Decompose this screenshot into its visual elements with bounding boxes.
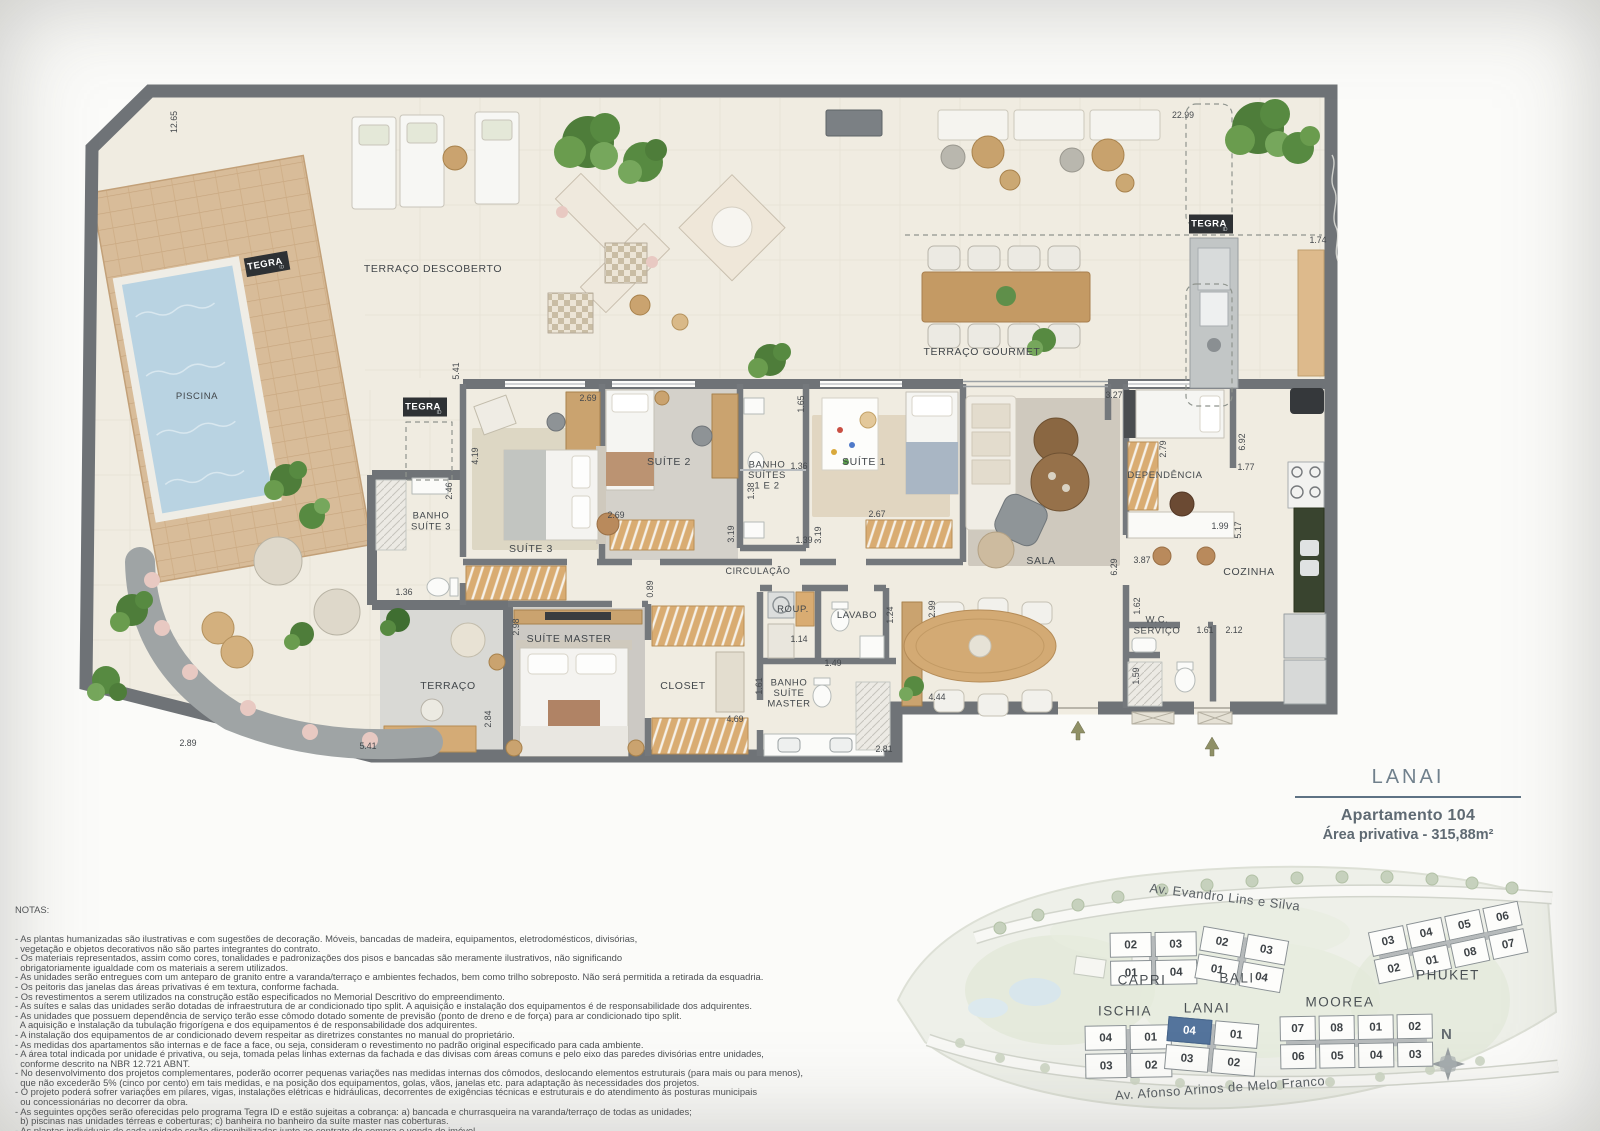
unit-ischia-04: 04	[1085, 1025, 1127, 1051]
unit-moorea-01: 01	[1358, 1014, 1394, 1040]
tegra-logo-text: TEGRA	[1191, 219, 1227, 230]
title-divider	[1295, 796, 1521, 798]
dimension-label: 5.17	[1233, 521, 1243, 538]
dimension-label: 5.41	[451, 362, 461, 379]
dimension-label: 2.46	[444, 482, 454, 499]
apartment-label: Apartamento 104	[1295, 807, 1521, 825]
dimension-label: 0.89	[645, 580, 655, 597]
notes-lines: - As plantas humanizadas são ilustrativa…	[15, 934, 803, 1131]
room-label: TERRAÇO GOURMET	[924, 346, 1041, 358]
entrance-arrow-icon	[1205, 737, 1219, 756]
dimension-label: 2.79	[1158, 440, 1168, 457]
dimension-label: 4.19	[470, 447, 480, 464]
room-label: DEPENDÊNCIA	[1127, 470, 1202, 481]
sitemap-building-ischia: 04010302	[1085, 1024, 1173, 1082]
dimension-label: 1.77	[1237, 462, 1254, 472]
dimension-label: 1.59	[1131, 667, 1141, 684]
dimension-label: 1.39	[795, 535, 812, 545]
dimension-label: 1.14	[790, 634, 807, 644]
room-label: CLOSET	[660, 680, 706, 692]
plant	[996, 286, 1016, 306]
sitemap-building-lanai: 04010302	[1164, 1016, 1260, 1080]
sun-loungers	[352, 112, 519, 209]
dimension-label: 3.87	[1133, 555, 1150, 565]
dimension-label: 1.49	[824, 658, 841, 668]
unit-capri-03: 03	[1155, 931, 1197, 957]
unit-lanai-03: 03	[1164, 1044, 1210, 1073]
room-label: SUÍTE 1	[842, 455, 886, 468]
dimension-label: 1.65	[796, 395, 806, 412]
dimension-label: 4.44	[928, 692, 945, 702]
dimension-label: 2.12	[1225, 625, 1242, 635]
dimension-label: 1.24	[885, 606, 895, 623]
room-label: TERRAÇO DESCOBERTO	[364, 263, 502, 275]
note-line: - As plantas individuais de cada unidade…	[15, 1126, 803, 1131]
dimension-label: 1.61	[1196, 625, 1213, 635]
unit-moorea-07: 07	[1280, 1016, 1316, 1042]
sitemap-building-name-ischia: ISCHIA	[1098, 1004, 1152, 1019]
dimension-label: 6.92	[1237, 433, 1247, 450]
tegra-logo-id-text: ID	[1223, 227, 1228, 233]
room-label: BANHOSUÍTE 3	[411, 511, 451, 533]
dimension-label: 1.36	[790, 461, 807, 471]
notes-heading: NOTAS:	[15, 905, 803, 915]
dimension-label: 1.99	[1211, 521, 1228, 531]
sitemap-building-name-capri: CAPRI	[1118, 973, 1167, 988]
room-label: SUÍTE 2	[647, 455, 691, 468]
room-label: LAVABO	[837, 610, 877, 621]
dimension-label: 2.99	[927, 600, 937, 617]
dimension-label: 1.61	[754, 677, 764, 694]
room-label: CIRCULAÇÃO	[725, 566, 790, 576]
notes-block: NOTAS: - As plantas humanizadas são ilus…	[15, 886, 803, 1131]
dimension-label: 4.69	[726, 714, 743, 724]
entrance-arrow-icon	[1071, 721, 1085, 740]
dimension-label: 2.69	[579, 393, 596, 403]
dimension-label: 2.67	[868, 509, 885, 519]
dimension-label: 1.74	[1309, 235, 1326, 245]
dimension-label: 5.41	[359, 741, 376, 751]
dimension-label: 1.36	[395, 587, 412, 597]
room-label: SALA	[1026, 555, 1055, 567]
dimension-label: 22.99	[1172, 110, 1194, 120]
unit-lanai-02: 02	[1211, 1048, 1257, 1077]
grill	[826, 110, 882, 136]
title-block: LANAI Apartamento 104 Área privativa - 3…	[1295, 766, 1521, 843]
dimension-label: 2.81	[875, 744, 892, 754]
unit-moorea-06: 06	[1280, 1044, 1316, 1070]
tegra-logo-text: TEGRA	[405, 402, 441, 413]
unit-ischia-03: 03	[1085, 1053, 1127, 1079]
floorplan-graphics: TERRAÇO DESCOBERTOPISCINATERRAÇO GOURMET…	[86, 91, 1338, 756]
building-name: LANAI	[1295, 766, 1521, 789]
unit-moorea-05: 05	[1319, 1043, 1355, 1069]
room-label: BANHOSUÍTEMASTER	[767, 677, 810, 709]
compass-north-label: N	[1441, 1026, 1452, 1043]
dimension-label: 1.38	[746, 482, 756, 499]
unit-lanai-01: 01	[1213, 1020, 1259, 1049]
private-area-label: Área privativa - 315,88m²	[1295, 827, 1521, 843]
dimension-label: 6.29	[1109, 558, 1119, 575]
unit-lanai-04: 04	[1166, 1016, 1212, 1045]
dimension-label: 3.27	[1105, 390, 1122, 400]
dimension-label: 2.89	[179, 738, 196, 748]
sitemap-building-name-moorea: MOOREA	[1305, 995, 1374, 1010]
sitemap-building-name-phuket: PHUKET	[1416, 968, 1480, 983]
dimension-label: 1.62	[1132, 597, 1142, 614]
dimension-label: 2.98	[511, 618, 521, 635]
room-label: TERRAÇO	[420, 680, 476, 692]
room-label: SUÍTE MASTER	[527, 632, 612, 645]
sitemap-building-name-bali: BALI	[1219, 971, 1254, 986]
room-label: COZINHA	[1223, 566, 1274, 578]
room-label: SUÍTE 3	[509, 542, 553, 555]
entrance-arrows	[1071, 721, 1219, 756]
dimension-label: 12.65	[169, 111, 179, 133]
dimension-label: 2.69	[607, 510, 624, 520]
room-label: ROUP.	[777, 604, 809, 615]
tegra-logo-id-text: ID	[437, 410, 442, 416]
tegra-id-logo: TEGRAID	[403, 398, 447, 417]
tegra-id-logo: TEGRAID	[1189, 215, 1233, 234]
dimension-label: 2.84	[483, 710, 493, 727]
room-label: PISCINA	[176, 391, 218, 402]
unit-moorea-04: 04	[1358, 1042, 1394, 1068]
dimension-label: 3.19	[726, 525, 736, 542]
unit-capri-02: 02	[1110, 932, 1152, 958]
sitemap-building-moorea: 0708010206050403	[1280, 1014, 1434, 1073]
unit-moorea-03: 03	[1397, 1042, 1433, 1068]
dimension-label: 3.19	[813, 526, 823, 543]
floor-plan-page: TERRAÇO DESCOBERTOPISCINATERRAÇO GOURMET…	[0, 0, 1600, 1131]
unit-moorea-08: 08	[1319, 1015, 1355, 1041]
unit-moorea-02: 02	[1397, 1014, 1433, 1040]
sitemap-building-name-lanai: LANAI	[1184, 1001, 1231, 1016]
